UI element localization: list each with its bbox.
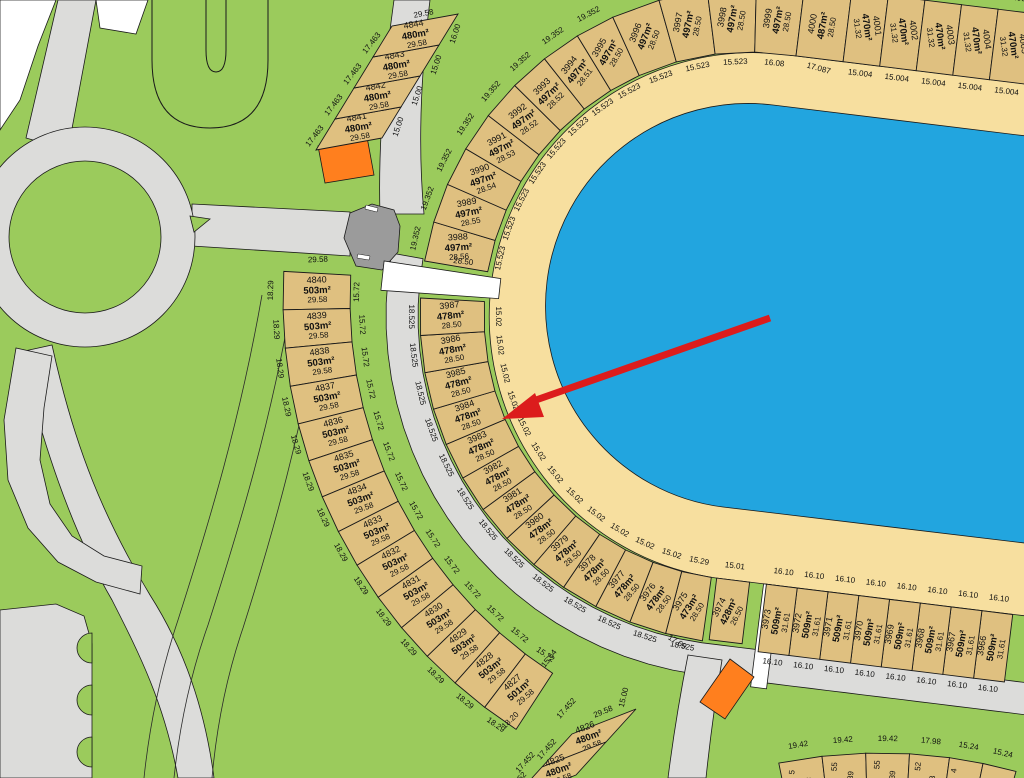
dim-label-text: 15.02: [494, 306, 503, 327]
street-dim: 18.525: [407, 304, 416, 329]
street-dim: 15.72: [352, 281, 361, 302]
lot-fragment: 39: [888, 770, 898, 778]
dim-label-text: 55: [830, 761, 840, 771]
lot-partial-3[interactable]: [906, 754, 950, 778]
frontage-dim: 15.02: [494, 306, 503, 327]
subdivision-map: 3966509m²31.6116.1016.103967509m²31.6116…: [0, 0, 1024, 778]
frontage-dim: 19.42: [833, 735, 854, 745]
lot-dim: 29.58: [308, 330, 329, 341]
dim-label-text: 15.72: [352, 281, 361, 302]
frontage-dim: 19.42: [878, 734, 899, 743]
back-dim: 18.29: [271, 319, 281, 340]
street-dim: 15.72: [357, 314, 367, 335]
back-dim: 18.29: [266, 280, 275, 301]
dim-label-text: 15.72: [357, 314, 367, 335]
dim-label: 29.58: [308, 255, 329, 265]
dim-label-text: 52: [913, 761, 923, 771]
lot-number: 4840: [306, 274, 326, 285]
lot-fragment: 55: [830, 761, 840, 771]
dim-label-text: 19.42: [878, 734, 899, 743]
dim-label-text: 18.525: [407, 304, 416, 329]
dim-label-text: 19.42: [833, 735, 854, 745]
dim-label-text: 55: [872, 759, 882, 769]
lot-dim: 29.58: [307, 295, 328, 305]
dim-label-text: 29.58: [308, 255, 329, 265]
dim-label-text: 15.523: [723, 57, 748, 67]
roundabout-island: [9, 161, 161, 313]
plat-map-canvas: 3966509m²31.6116.1016.103967509m²31.6116…: [0, 0, 1024, 778]
lot-number: 3988: [447, 231, 468, 242]
lot-fragment: 55: [872, 759, 882, 769]
dim-label-text: 18.29: [271, 319, 281, 340]
frontage-dim: 15.523: [723, 57, 748, 67]
dim-label-text: 18.29: [266, 280, 275, 301]
lot-partial-1[interactable]: [822, 753, 868, 778]
dim-label-text: 39: [888, 770, 898, 778]
lot-fragment: 52: [913, 761, 923, 771]
